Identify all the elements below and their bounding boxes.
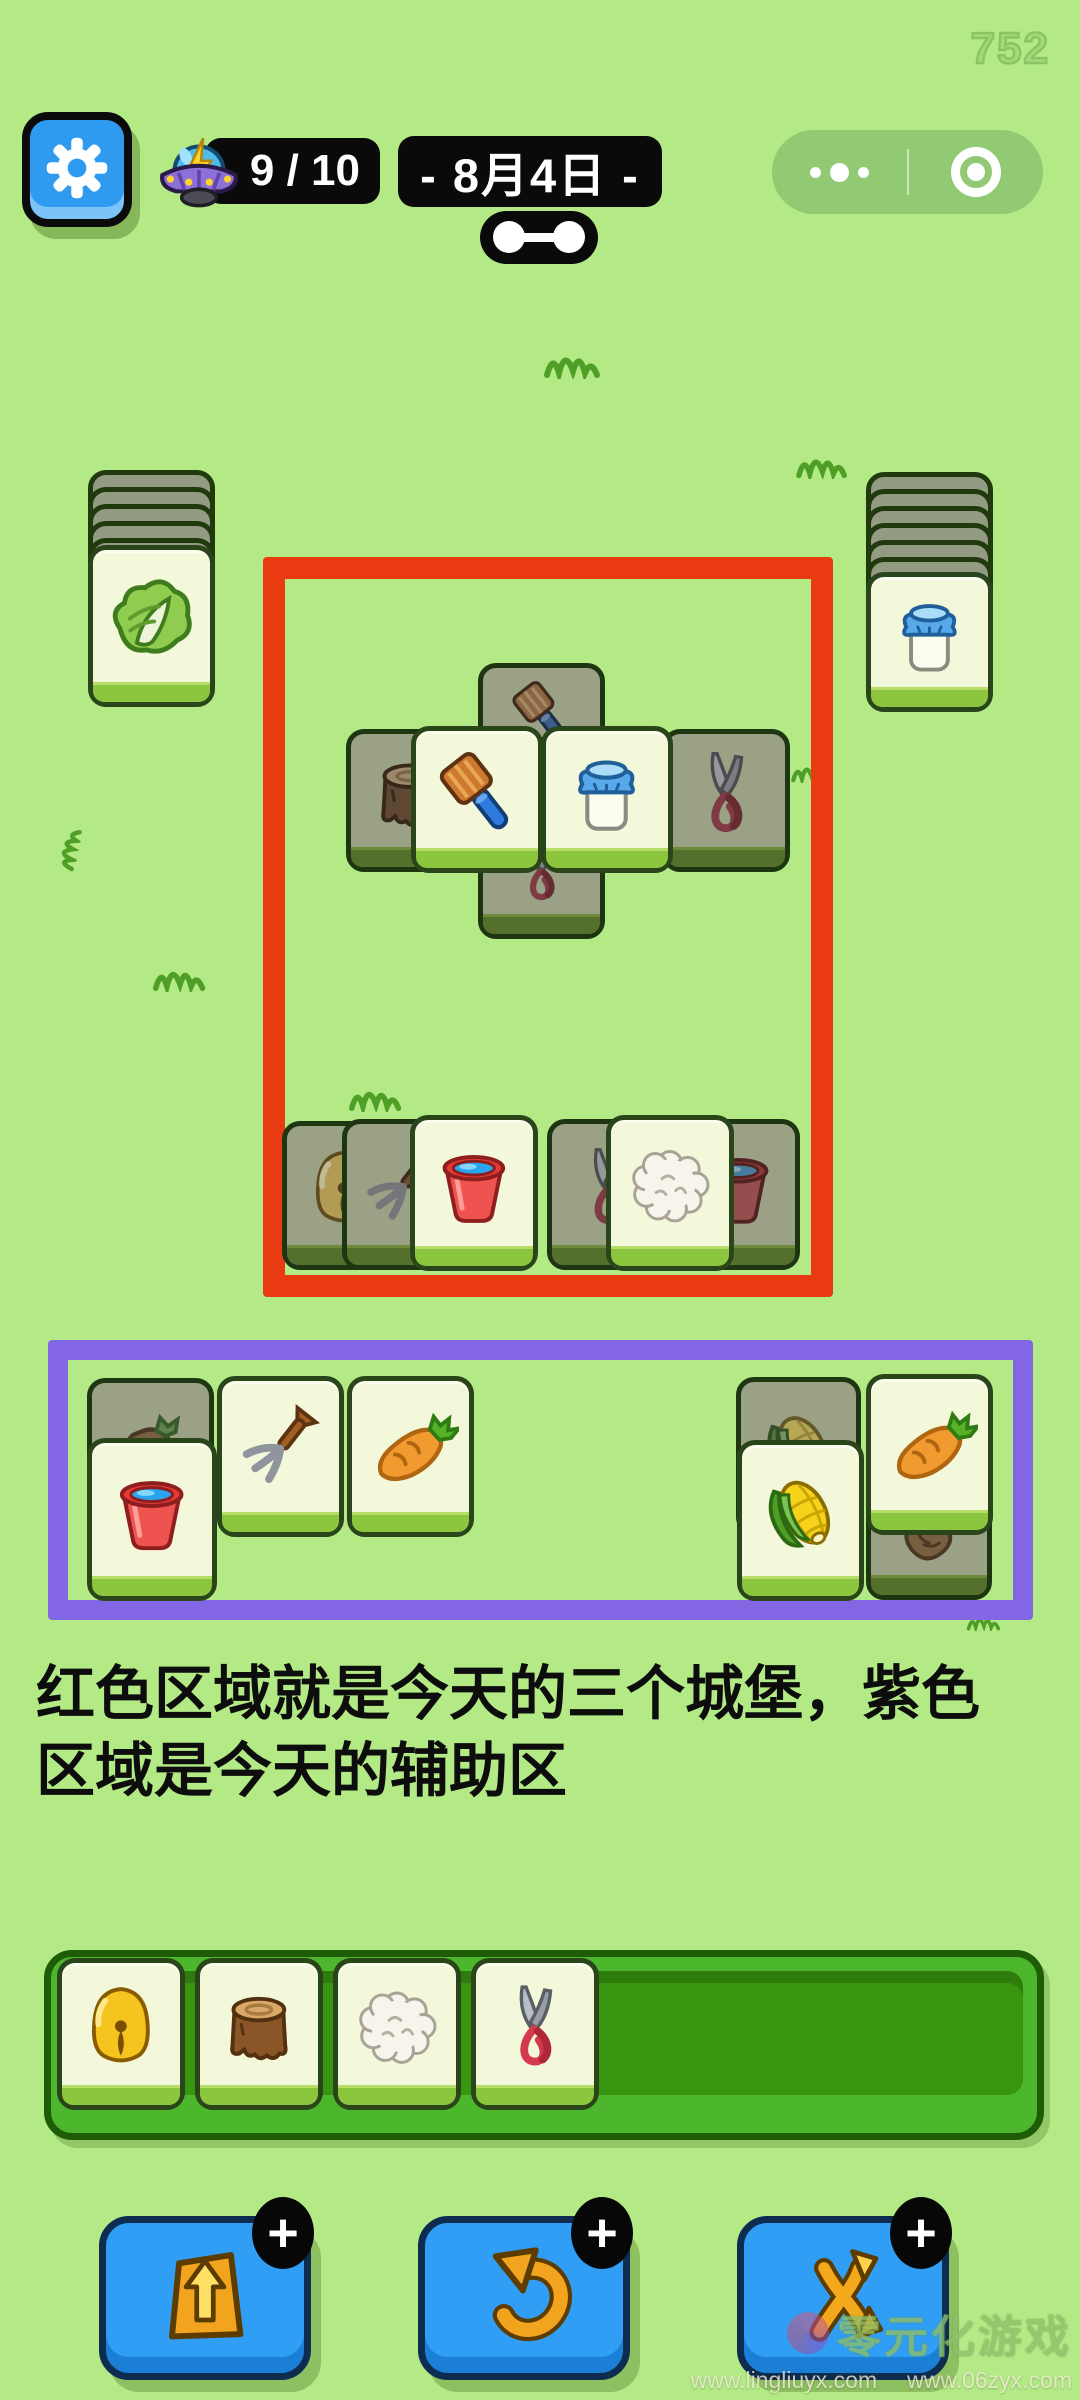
tile-bucket[interactable] [410,1115,538,1271]
carrot-icon [877,1384,982,1509]
tile-pitchfork[interactable] [217,1376,344,1537]
tile-wool [333,1958,461,2110]
tile-shears-covered [662,729,790,872]
tile-bucket[interactable] [87,1438,217,1601]
corn-icon [748,1450,853,1575]
milk-icon [877,581,982,689]
bucket-icon [98,1448,206,1575]
stump-icon [206,1967,312,2085]
tile-shears [471,1958,599,2110]
game-screen: { "hud": { "round_counter": "752", "ener… [0,0,1080,2400]
tile-wool[interactable] [606,1115,734,1271]
watermark-title: 零元化游戏 [837,2301,1072,2365]
tile-carrot[interactable] [347,1376,474,1537]
milk-icon [552,735,662,849]
watermark-logo-icon [787,2312,829,2354]
bucket-icon [421,1124,527,1245]
pitchfork-icon [228,1386,333,1511]
tile-bell [57,1958,185,2110]
shears-icon [482,1967,588,2085]
board-tiles-layer [0,0,1080,2400]
tile-milk[interactable] [866,572,993,712]
watermark-urls: www.lingliuyx.comwww.06zyx.com [691,2367,1072,2394]
tile-cabbage[interactable] [88,545,215,707]
brush-icon [422,735,532,849]
wool-icon [344,1967,450,2085]
tile-milk[interactable] [541,726,673,873]
cabbage-icon [99,555,204,681]
tile-corn[interactable] [737,1440,864,1601]
tile-brush[interactable] [411,726,543,873]
tile-stump [195,1958,323,2110]
bell-icon [68,1967,174,2085]
tile-carrot[interactable] [866,1374,993,1535]
watermark: 零元化游戏 www.lingliuyx.comwww.06zyx.com [691,2301,1072,2394]
shears-icon [673,738,779,848]
wool-icon [617,1124,723,1245]
carrot-icon [358,1386,463,1511]
